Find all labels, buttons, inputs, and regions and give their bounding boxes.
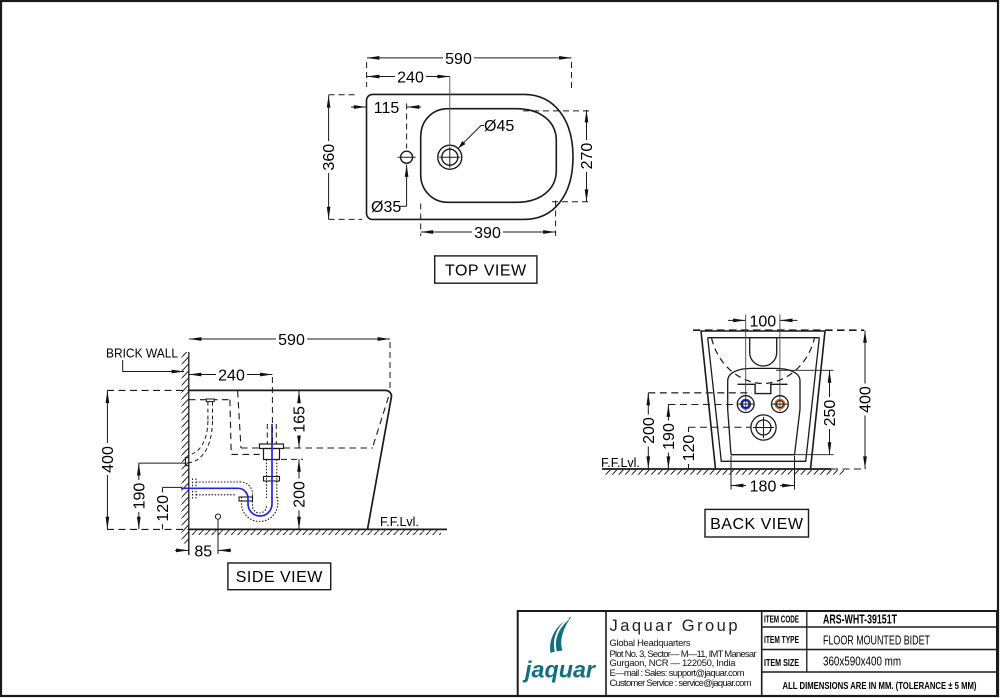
svg-text:Jaquar Group: Jaquar Group: [610, 617, 738, 635]
svg-text:190: 190: [661, 423, 678, 450]
svg-text:100: 100: [749, 313, 776, 330]
svg-text:ITEM CODE: ITEM CODE: [764, 614, 799, 626]
svg-text:250: 250: [822, 400, 839, 427]
svg-text:190: 190: [131, 483, 148, 510]
svg-text:Customer Service : service@jaq: Customer Service : service@jaquar.com: [610, 677, 752, 688]
svg-text:270: 270: [579, 143, 596, 170]
svg-text:F.F.Lvl.: F.F.Lvl.: [601, 456, 640, 470]
svg-text:Ø45: Ø45: [484, 118, 514, 135]
svg-text:590: 590: [445, 51, 472, 68]
svg-text:120: 120: [681, 435, 698, 462]
svg-text:200: 200: [641, 417, 658, 444]
svg-text:200: 200: [292, 481, 309, 508]
svg-text:240: 240: [397, 70, 424, 87]
svg-text:ARS-WHT-39151T: ARS-WHT-39151T: [823, 612, 897, 627]
svg-text:F.F.Lvl.: F.F.Lvl.: [380, 515, 419, 529]
svg-text:115: 115: [374, 100, 400, 117]
svg-text:360x590x400 mm: 360x590x400 mm: [823, 654, 901, 669]
svg-text:165: 165: [292, 406, 309, 433]
svg-text:BRICK WALL: BRICK WALL: [106, 346, 178, 361]
svg-text:ITEM SIZE: ITEM SIZE: [764, 657, 799, 669]
svg-text:BACK VIEW: BACK VIEW: [710, 516, 804, 533]
svg-text:120: 120: [155, 495, 172, 522]
svg-text:400: 400: [100, 446, 117, 473]
svg-text:360: 360: [321, 144, 338, 171]
svg-text:390: 390: [474, 225, 501, 242]
svg-text:jaquar: jaquar: [522, 657, 597, 683]
svg-text:240: 240: [218, 368, 245, 385]
svg-text:FLOOR MOUNTED BIDET: FLOOR MOUNTED BIDET: [823, 633, 930, 648]
svg-text:400: 400: [858, 386, 875, 413]
svg-text:TOP VIEW: TOP VIEW: [445, 262, 527, 279]
svg-text:85: 85: [194, 543, 212, 560]
svg-text:SIDE VIEW: SIDE VIEW: [236, 569, 324, 586]
svg-text:ITEM TYPE: ITEM TYPE: [764, 634, 799, 646]
svg-text:ALL DIMENSIONS ARE IN MM. (TOL: ALL DIMENSIONS ARE IN MM. (TOLERANCE ± 5…: [783, 680, 977, 692]
svg-text:Global Headquarters: Global Headquarters: [610, 637, 691, 648]
svg-text:590: 590: [278, 332, 305, 349]
svg-text:180: 180: [750, 479, 777, 496]
svg-text:Ø35: Ø35: [371, 199, 401, 216]
